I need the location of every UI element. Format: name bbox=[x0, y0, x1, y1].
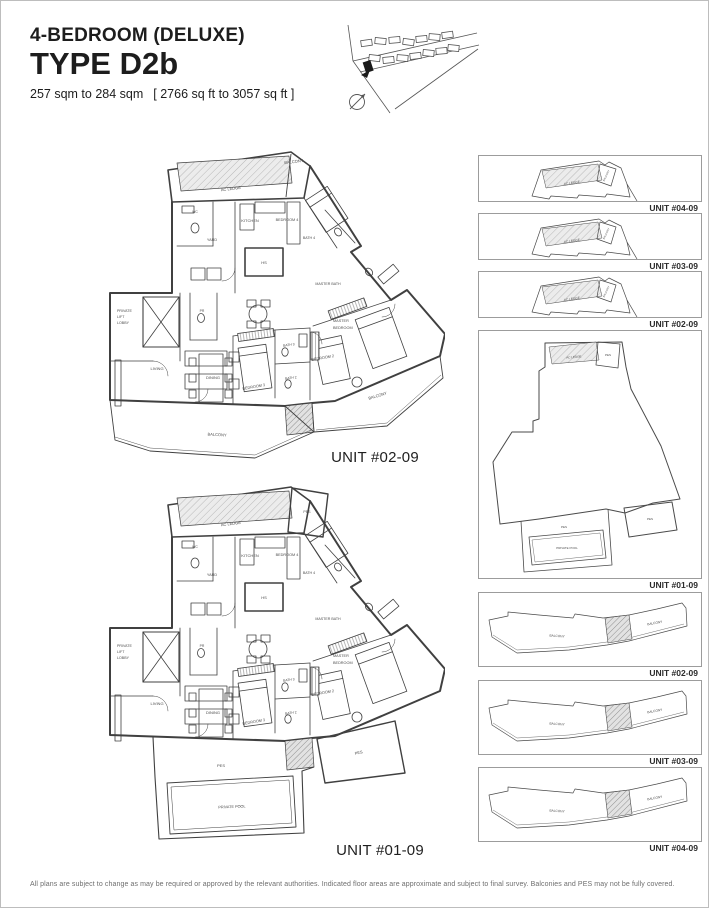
key-caption: UNIT #03-09 bbox=[478, 756, 698, 766]
pes-top-label: PES bbox=[605, 353, 611, 357]
floor-plan-unit-01-09: PES AC LEDGE WC YARD KITCHEN HS BEDROOM … bbox=[95, 483, 445, 845]
svg-text:BEDROOM: BEDROOM bbox=[333, 661, 353, 665]
pr-label: PR bbox=[200, 309, 205, 313]
pes-bottom-label: PES bbox=[561, 525, 567, 529]
dining-label: DINING bbox=[206, 710, 220, 715]
pes-bottom-area bbox=[521, 509, 612, 572]
hatched-planter bbox=[605, 615, 632, 643]
hatched-planter bbox=[605, 790, 632, 818]
bath3-label: BATH 3 bbox=[283, 677, 295, 683]
lift-lobby-label: PRIVATE bbox=[117, 644, 132, 648]
ac-ledge-label: AC LEDGE bbox=[564, 180, 581, 186]
locator-buildings bbox=[361, 31, 460, 63]
living-label: LIVING bbox=[150, 701, 163, 706]
pr-label: PR bbox=[200, 644, 205, 648]
key-caption: UNIT #04-09 bbox=[478, 843, 698, 853]
unit-location-marker bbox=[361, 60, 374, 78]
ac-ledge-hatch bbox=[549, 342, 599, 364]
unit-caption-02-09: UNIT #02-09 bbox=[295, 449, 455, 466]
balcony-right-label: BALCONY bbox=[647, 620, 664, 627]
pes-right-label: PES bbox=[647, 517, 653, 521]
site-locator-map bbox=[340, 25, 480, 120]
key-plan-01-09-large: AC LEDGE PES PES PRIVATE POOL PES bbox=[478, 330, 702, 579]
key-caption: UNIT #03-09 bbox=[478, 261, 698, 271]
unit-area: 257 sqm to 284 sqm[ 2766 sq ft to 3057 s… bbox=[30, 87, 304, 101]
svg-text:LOBBY: LOBBY bbox=[117, 656, 130, 660]
bath4-label: BATH 4 bbox=[303, 236, 315, 240]
balcony-right-label: BALCONY bbox=[647, 708, 664, 715]
unit-outline bbox=[493, 342, 680, 524]
area-imperial: [ 2766 sq ft to 3057 sq ft ] bbox=[153, 87, 294, 101]
master-bedroom-label: MASTER bbox=[333, 654, 349, 658]
svg-text:LOBBY: LOBBY bbox=[117, 321, 130, 325]
private-pool-label: PRIVATE POOL bbox=[556, 546, 578, 550]
svg-text:LIFT: LIFT bbox=[117, 650, 125, 654]
pes-top-label: PES bbox=[303, 510, 311, 514]
living-label: LIVING bbox=[150, 366, 163, 371]
key-caption: UNIT #02-09 bbox=[478, 319, 698, 329]
key-plan-03-09-balcony: BALCONY BALCONY bbox=[478, 680, 702, 755]
ac-ledge-label: AC LEDGE bbox=[564, 238, 581, 244]
master-bedroom-label: MASTER bbox=[333, 319, 349, 323]
disclaimer-text: All plans are subject to change as may b… bbox=[30, 881, 690, 888]
unit-type-title: TYPE D2b bbox=[30, 48, 304, 81]
bedroom3-label: BEDROOM 3 bbox=[242, 718, 265, 726]
yard-label: YARD bbox=[207, 573, 218, 577]
pes-bottom-label: PES bbox=[217, 763, 225, 768]
balcony-label: BALCONY bbox=[602, 227, 611, 240]
master-bath-label: MASTER BATH bbox=[315, 282, 341, 286]
key-caption: UNIT #04-09 bbox=[478, 203, 698, 213]
bath2-label: BATH 2 bbox=[285, 710, 297, 716]
key-plan-04-09-top: AC LEDGE BALCONY bbox=[478, 155, 702, 202]
yard-label: YARD bbox=[207, 238, 218, 242]
floor-plan-unit-02-09: BALCONY AC LEDGE WC YARD KITCHEN HS BEDR… bbox=[95, 148, 445, 478]
svg-text:LIFT: LIFT bbox=[117, 315, 125, 319]
bottom-balcony bbox=[110, 400, 314, 458]
bath2-label: BATH 2 bbox=[285, 375, 297, 381]
bedroom4-label: BEDROOM 4 bbox=[276, 218, 299, 222]
hatched-planter bbox=[285, 738, 314, 770]
north-arrow-icon bbox=[350, 94, 366, 110]
balcony-label: BALCONY bbox=[602, 285, 611, 298]
kitchen-label: KITCHEN bbox=[241, 553, 259, 558]
key-plan-02-09-balcony: BALCONY BALCONY bbox=[478, 592, 702, 667]
svg-text:BEDROOM: BEDROOM bbox=[333, 326, 353, 330]
bath4-label: BATH 4 bbox=[303, 571, 315, 575]
bedroom3-label: BEDROOM 3 bbox=[242, 383, 265, 391]
wc-label: WC bbox=[192, 210, 198, 214]
hs-label: HS bbox=[261, 595, 267, 600]
balcony-right-label: BALCONY bbox=[368, 390, 388, 400]
wc-label: WC bbox=[192, 545, 198, 549]
balcony-right-label: BALCONY bbox=[647, 795, 664, 802]
private-pool-label: PRIVATE POOL bbox=[218, 805, 245, 810]
bedroom4-label: BEDROOM 4 bbox=[276, 553, 299, 557]
ac-ledge-label: AC LEDGE bbox=[564, 296, 581, 302]
balcony-left-label: BALCONY bbox=[549, 633, 565, 638]
key-plan-03-09-top: AC LEDGE BALCONY bbox=[478, 213, 702, 260]
key-plan-04-09-balcony: BALCONY BALCONY bbox=[478, 767, 702, 842]
balcony-left-label: BALCONY bbox=[549, 721, 565, 726]
hs-label: HS bbox=[261, 260, 267, 265]
key-caption: UNIT #02-09 bbox=[478, 668, 698, 678]
key-plan-02-09-top: AC LEDGE BALCONY bbox=[478, 271, 702, 318]
floor-plan-page: 4-BEDROOM (DELUXE) TYPE D2b 257 sqm to 2… bbox=[0, 0, 709, 908]
bath3-label: BATH 3 bbox=[283, 342, 295, 348]
header: 4-BEDROOM (DELUXE) TYPE D2b 257 sqm to 2… bbox=[30, 26, 304, 101]
balcony-left-label: BALCONY bbox=[549, 808, 565, 813]
dining-label: DINING bbox=[206, 375, 220, 380]
unit-caption-01-09: UNIT #01-09 bbox=[300, 842, 460, 859]
balcony-bottom-label: BALCONY bbox=[207, 432, 227, 438]
pes-right-label: PES bbox=[354, 749, 363, 756]
lift-lobby-label: PRIVATE bbox=[117, 309, 132, 313]
master-bath-label: MASTER BATH bbox=[315, 617, 341, 621]
area-metric: 257 sqm to 284 sqm bbox=[30, 87, 143, 101]
balcony-label: BALCONY bbox=[602, 169, 611, 182]
balcony-top-label: BALCONY bbox=[284, 158, 304, 165]
hatched-planter bbox=[605, 703, 632, 731]
unit-type-subtitle: 4-BEDROOM (DELUXE) bbox=[30, 26, 304, 46]
key-caption: UNIT #01-09 bbox=[478, 580, 698, 590]
kitchen-label: KITCHEN bbox=[241, 218, 259, 223]
